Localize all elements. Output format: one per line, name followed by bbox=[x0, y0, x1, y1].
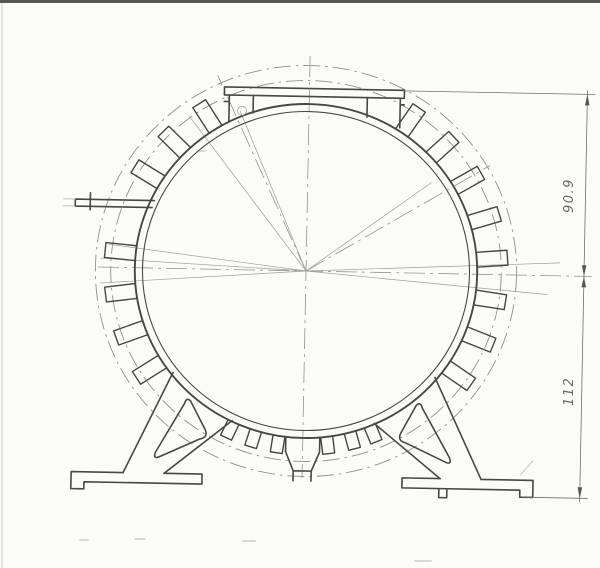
fin bbox=[104, 283, 137, 303]
scan-border-top bbox=[0, 0, 600, 3]
fin bbox=[104, 243, 136, 261]
dimension-arrow bbox=[582, 265, 587, 276]
leg-right bbox=[373, 376, 483, 479]
fin-short bbox=[270, 435, 285, 454]
dimension-label-112: 112 bbox=[562, 377, 577, 406]
foot-right-leader bbox=[520, 460, 533, 475]
dimension-arrow bbox=[581, 276, 586, 287]
drawing-geometry bbox=[58, 51, 596, 502]
foot-right bbox=[402, 478, 533, 500]
construction-line bbox=[306, 271, 548, 295]
dimension-arrow bbox=[585, 94, 590, 105]
terminal-tab-left bbox=[75, 193, 154, 212]
dimension-line bbox=[580, 90, 588, 502]
dimension-arrow bbox=[577, 487, 582, 498]
construction-line bbox=[306, 180, 432, 273]
fin bbox=[467, 206, 501, 230]
construction-line bbox=[306, 258, 560, 276]
fin bbox=[474, 290, 507, 310]
leg-left bbox=[123, 372, 233, 475]
diagonal-center-line bbox=[306, 162, 490, 274]
construction-line bbox=[108, 244, 306, 271]
cross-section-drawing: 90.9 112 bbox=[0, 0, 600, 568]
leg-right-cutout bbox=[399, 403, 451, 463]
foot-left bbox=[71, 472, 202, 492]
leg-left-cutout bbox=[155, 399, 207, 459]
top-plate bbox=[224, 87, 404, 98]
fin bbox=[158, 126, 191, 158]
terminal-tab-ghost bbox=[63, 199, 75, 206]
construction-line bbox=[237, 111, 309, 271]
fin bbox=[426, 131, 459, 163]
fin-short bbox=[320, 436, 335, 455]
pencil-smudges bbox=[80, 151, 431, 561]
dimension-label-90-9: 90.9 bbox=[562, 178, 577, 213]
construction-line bbox=[186, 116, 309, 271]
drawing-sheet: 90.9 112 bbox=[0, 0, 600, 568]
datum-marker bbox=[237, 106, 246, 115]
extension-line bbox=[404, 91, 595, 95]
